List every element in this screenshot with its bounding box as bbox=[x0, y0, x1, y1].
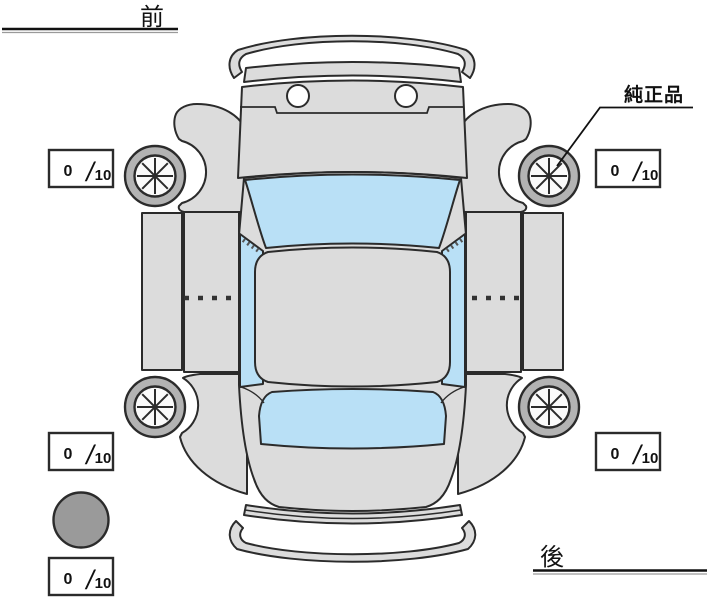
tread-max: 10 bbox=[95, 575, 112, 592]
windshield bbox=[245, 175, 460, 249]
front-left-wheel-icon bbox=[125, 146, 185, 206]
front-left-fender bbox=[174, 104, 247, 212]
rear-orientation-label: 後 bbox=[533, 544, 707, 574]
genuine-parts-label: 純正品 bbox=[624, 83, 684, 106]
tread-value: 0 bbox=[611, 163, 620, 180]
spare-tire-icon bbox=[54, 493, 109, 548]
right-door-panel bbox=[466, 212, 521, 372]
tread-value: 0 bbox=[64, 163, 73, 180]
front-right-wheel-icon bbox=[519, 146, 579, 206]
front-cowl-strip bbox=[244, 62, 461, 82]
front-orientation-label: 前 bbox=[2, 4, 178, 33]
rear-right-fender bbox=[458, 374, 525, 494]
front-label: 前 bbox=[140, 4, 164, 31]
hood-circle-right bbox=[395, 85, 417, 107]
right-rocker-panel bbox=[523, 213, 563, 370]
tread-box-spare: 0 / 10 bbox=[49, 558, 113, 595]
car-body bbox=[142, 36, 563, 562]
hood-panel bbox=[238, 81, 467, 179]
front-right-fender bbox=[458, 104, 531, 212]
vehicle-inspection-sheet: 純正品 0 / 10 0 / 10 0 / 10 0 / 10 0 / 10 前… bbox=[0, 0, 711, 600]
tread-box-front-right: 0 / 10 bbox=[596, 150, 660, 187]
tread-value: 0 bbox=[64, 446, 73, 463]
vehicle-top-view-diagram: 純正品 0 / 10 0 / 10 0 / 10 0 / 10 0 / 10 前… bbox=[0, 0, 711, 600]
tread-max: 10 bbox=[95, 167, 112, 184]
rear-label: 後 bbox=[540, 544, 564, 571]
rear-right-wheel-icon bbox=[519, 377, 579, 437]
tread-value: 0 bbox=[611, 446, 620, 463]
rear-bumper bbox=[230, 521, 476, 562]
rear-left-wheel-icon bbox=[125, 377, 185, 437]
hood-circle-left bbox=[287, 85, 309, 107]
rear-window bbox=[259, 389, 446, 449]
tread-value: 0 bbox=[64, 571, 73, 588]
tread-max: 10 bbox=[642, 450, 659, 467]
left-rocker-panel bbox=[142, 213, 182, 370]
tread-max: 10 bbox=[642, 167, 659, 184]
rear-left-fender bbox=[180, 374, 247, 494]
tread-box-rear-right: 0 / 10 bbox=[596, 433, 660, 470]
tread-box-front-left: 0 / 10 bbox=[49, 150, 113, 187]
left-door-panel bbox=[184, 212, 239, 372]
tread-box-rear-left: 0 / 10 bbox=[49, 433, 113, 470]
roof-panel bbox=[255, 248, 450, 387]
tread-max: 10 bbox=[95, 450, 112, 467]
